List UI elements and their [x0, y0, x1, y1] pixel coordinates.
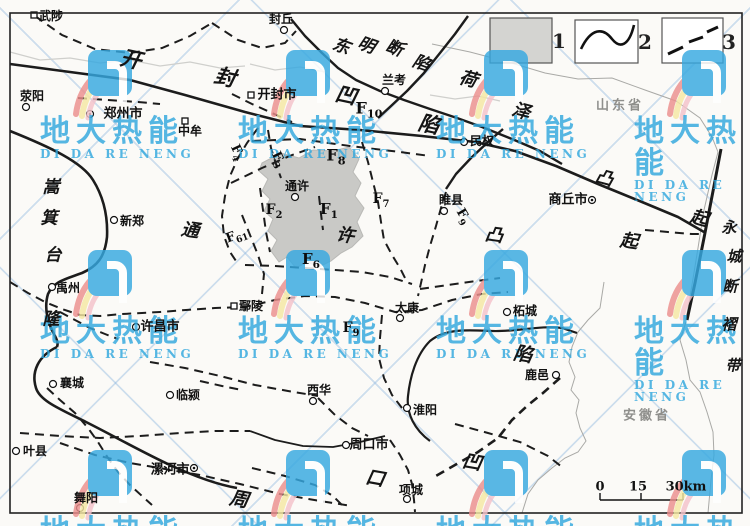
dida-reneng-logo-icon [274, 50, 330, 118]
watermark-logos [0, 0, 750, 526]
dida-reneng-logo-icon [472, 250, 528, 318]
dida-reneng-logo-icon [670, 50, 726, 118]
dida-reneng-logo-icon [76, 50, 132, 118]
dida-reneng-logo-icon [670, 250, 726, 318]
dida-reneng-logo-icon [670, 450, 726, 518]
dida-reneng-logo-icon [76, 250, 132, 318]
dida-reneng-logo-icon [274, 450, 330, 518]
dida-reneng-logo-icon [76, 450, 132, 518]
dida-reneng-logo-icon [274, 250, 330, 318]
geologic-map: 地大热能DI DA RE NENG地大热能DI DA RE NENG地大热能DI… [0, 0, 750, 526]
dida-reneng-logo-icon [472, 50, 528, 118]
dida-reneng-logo-icon [472, 450, 528, 518]
